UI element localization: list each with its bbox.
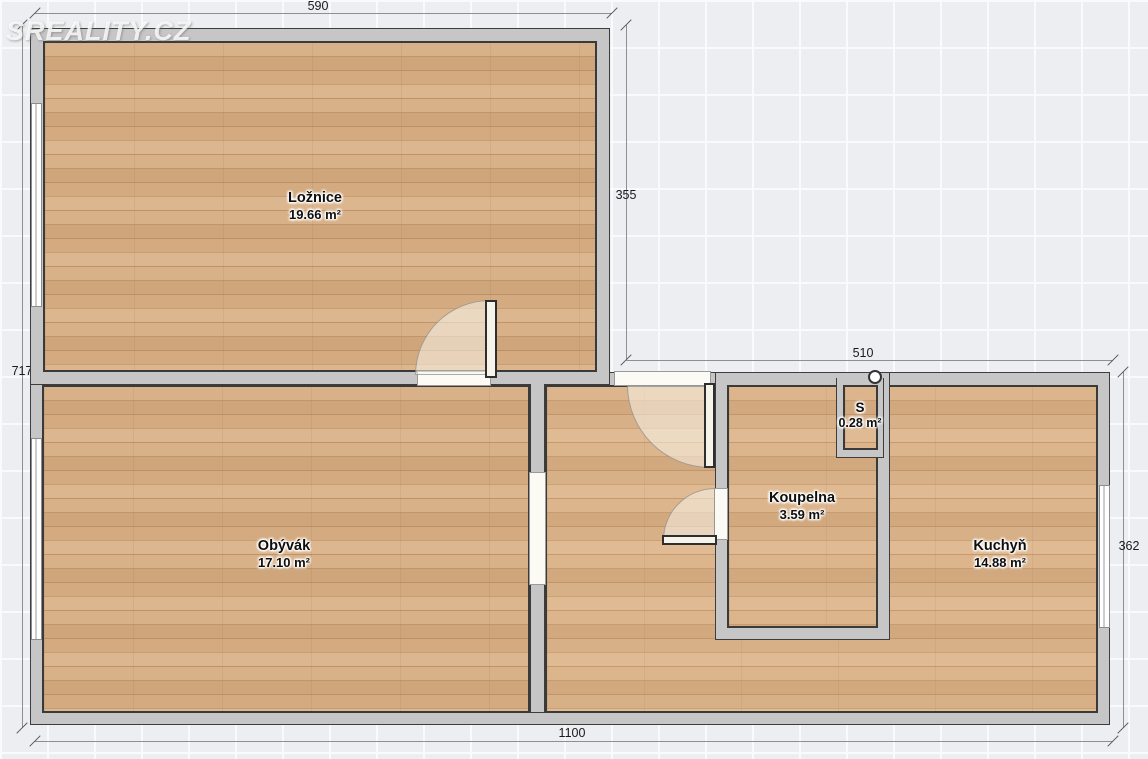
dim-line-entry-top bbox=[626, 360, 1113, 361]
living-room-area: 17.10 m² bbox=[258, 555, 310, 571]
dim-line-top bbox=[35, 13, 612, 14]
dim-label-bottom: 1100 bbox=[559, 726, 586, 740]
sreality-watermark-logo: SREALITY.CZ bbox=[6, 16, 192, 47]
door-knob-icon bbox=[868, 370, 882, 384]
kitchen-window bbox=[1099, 485, 1110, 628]
bathroom-door-opening bbox=[714, 488, 728, 540]
kitchen-name: Kuchyň bbox=[973, 538, 1026, 555]
entrance-door-opening bbox=[614, 371, 711, 386]
living-room-window bbox=[31, 438, 42, 640]
kitchen-area: 14.88 m² bbox=[973, 555, 1026, 571]
bedroom-window bbox=[31, 103, 42, 307]
bathroom-name: Koupelna bbox=[769, 490, 835, 507]
bedroom-label: Ložnice 19.66 m² bbox=[288, 190, 342, 222]
bathroom-area: 3.59 m² bbox=[769, 507, 835, 523]
dim-line-bottom bbox=[35, 741, 1113, 742]
dim-label-bedroom-right: 355 bbox=[616, 188, 637, 202]
living-room-name: Obývák bbox=[258, 538, 310, 555]
dim-label-entry-top: 510 bbox=[853, 346, 874, 360]
dim-label-kitchen-right: 362 bbox=[1119, 539, 1140, 553]
dim-label-top: 590 bbox=[308, 0, 329, 13]
bathroom-label: Koupelna 3.59 m² bbox=[769, 490, 835, 522]
entrance-door-leaf bbox=[704, 383, 715, 468]
bathroom-door-leaf bbox=[662, 535, 717, 545]
floor-plan: 590 355 510 717 362 1100 bbox=[0, 0, 1148, 759]
bedroom-name: Ložnice bbox=[288, 190, 342, 207]
shaft-label: S 0.28 m² bbox=[838, 400, 881, 431]
shaft-name: S bbox=[838, 400, 881, 416]
shaft-area: 0.28 m² bbox=[838, 416, 881, 431]
living-room-door-opening bbox=[529, 472, 546, 585]
living-room-label: Obývák 17.10 m² bbox=[258, 538, 310, 570]
bedroom-door-leaf bbox=[485, 300, 497, 378]
bedroom-area: 19.66 m² bbox=[288, 207, 342, 223]
kitchen-label: Kuchyň 14.88 m² bbox=[973, 538, 1026, 570]
